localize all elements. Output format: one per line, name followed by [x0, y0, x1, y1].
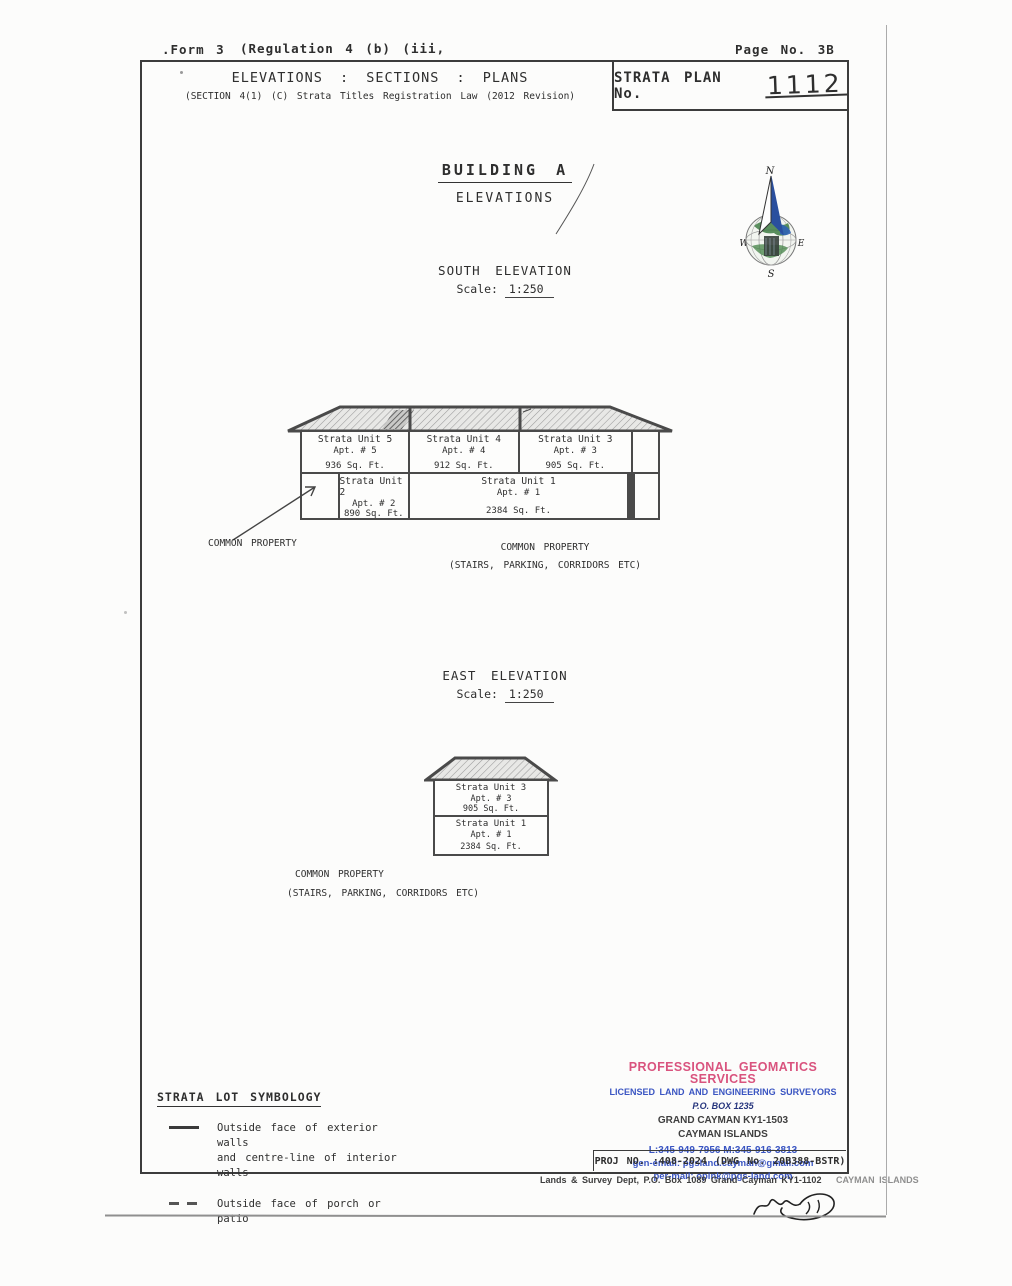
strata-plan-label: STRATA PLAN No. [614, 70, 755, 102]
east-elevation-heading: EAST ELEVATION Scale: 1:250 [400, 668, 610, 701]
legend-label-line1: Outside face of porch or patio [217, 1197, 417, 1227]
compass-s: S [768, 269, 775, 280]
page-number: Page No. 3B [735, 42, 835, 57]
project-number: PROJ NO. :408-2024 (DWG No. 20B388-BSTR) [595, 1156, 846, 1167]
east-elevation-drawing: Strata Unit 3 Apt. # 3 905 Sq. Ft. Strat… [424, 754, 558, 860]
dashed-line-symbol [169, 1202, 199, 1205]
unit-name: Strata Unit 3 [456, 783, 526, 793]
compass-e: E [797, 239, 805, 249]
unit-box-strata-2: Strata Unit 2 Apt. # 2 890 Sq. Ft. [338, 472, 411, 520]
unit-name: Strata Unit 2 [340, 476, 409, 498]
project-number-box: PROJ NO. :408-2024 (DWG No. 20B388-BSTR) [593, 1150, 846, 1171]
unit-area: 912 Sq. Ft. [434, 461, 494, 471]
unit-area: 905 Sq. Ft. [463, 804, 519, 814]
lands-survey-country: CAYMAN ISLANDS [836, 1175, 919, 1185]
unit-name: Strata Unit 1 [456, 819, 526, 829]
unit-apt: Apt. # 2 [352, 499, 395, 509]
south-elevation-drawing: Strata Unit 5 Apt. # 5 936 Sq. Ft. Strat… [285, 403, 675, 525]
surveyor-po-box: P.O. BOX 1235 [600, 1100, 846, 1112]
legend-item-exterior-walls: Outside face of exterior walls and centr… [157, 1121, 417, 1181]
unit-apt: Apt. # 3 [554, 446, 597, 456]
unit-box-strata-4: Strata Unit 4 Apt. # 4 912 Sq. Ft. [408, 430, 521, 475]
unit-area: 905 Sq. Ft. [545, 461, 605, 471]
common-property-subtext: (STAIRS, PARKING, CORRIDORS ETC) [287, 888, 479, 899]
sheet-header: ELEVATIONS : SECTIONS : PLANS (SECTION 4… [150, 70, 610, 102]
legend-item-porch-patio: Outside face of porch or patio [157, 1197, 417, 1227]
south-common-property-center: COMMON PROPERTY (STAIRS, PARKING, CORRID… [430, 542, 660, 571]
sheet-subtitle: (SECTION 4(1) (C) Strata Titles Registra… [150, 91, 610, 102]
strata-plan-box: STRATA PLAN No. 1112 [612, 60, 849, 111]
south-elevation-heading: SOUTH ELEVATION Scale: 1:250 [400, 263, 610, 296]
east-floors: Strata Unit 3 Apt. # 3 905 Sq. Ft. Strat… [433, 779, 549, 857]
unit-name: Strata Unit 5 [318, 434, 392, 445]
unit-area: 2384 Sq. Ft. [460, 842, 521, 852]
surveyor-tagline: LICENSED LAND AND ENGINEERING SURVEYORS [600, 1086, 846, 1098]
unit-name: Strata Unit 3 [538, 434, 612, 445]
unit-box-strata-1-east: Strata Unit 1 Apt. # 1 2384 Sq. Ft. [433, 815, 549, 856]
south-scale-value: 1:250 [505, 282, 554, 298]
common-cell [631, 430, 661, 475]
scan-paper-edge-vertical [886, 25, 887, 1215]
unit-apt: Apt. # 1 [497, 488, 540, 498]
south-scale: Scale: 1:250 [400, 282, 610, 296]
surveyor-country: CAYMAN ISLANDS [600, 1129, 846, 1141]
unit-area: 890 Sq. Ft. [344, 509, 404, 519]
unit-box-strata-5: Strata Unit 5 Apt. # 5 936 Sq. Ft. [300, 430, 410, 475]
regulation-label: (Regulation 4 (b) (iii, [240, 41, 445, 56]
lands-survey-line: Lands & Survey Dept, P.O. Box 1089 Grand… [540, 1175, 919, 1185]
unit-area: 2384 Sq. Ft. [486, 506, 551, 516]
unit-apt: Apt. # 1 [471, 830, 512, 840]
unit-apt: Apt. # 4 [442, 446, 485, 456]
unit-box-strata-3-east: Strata Unit 3 Apt. # 3 905 Sq. Ft. [433, 779, 549, 818]
south-common-property-label-left: COMMON PROPERTY [208, 538, 297, 549]
unit-name: Strata Unit 1 [481, 476, 555, 487]
common-property-leader-arrow [225, 478, 325, 544]
legend-label-line2: and centre-line of interior walls [217, 1151, 417, 1181]
east-scale-label: Scale: [456, 687, 498, 701]
scan-dot [124, 611, 127, 614]
common-property-text: COMMON PROPERTY [430, 542, 660, 553]
strata-lot-symbology: STRATA LOT SYMBOLOGY Outside face of ext… [157, 1086, 417, 1227]
solid-line-symbol [169, 1126, 199, 1129]
east-scale: Scale: 1:250 [400, 687, 610, 701]
strata-plan-number-handwritten: 1112 [765, 73, 847, 98]
legend-label-line1: Outside face of exterior walls [217, 1121, 417, 1151]
unit-apt: Apt. # 3 [471, 794, 512, 804]
surveyor-city: GRAND CAYMAN KY1-1503 [600, 1115, 846, 1127]
stray-pen-line [550, 160, 600, 240]
sheet-title: ELEVATIONS : SECTIONS : PLANS [150, 70, 610, 86]
south-lower-floor: Strata Unit 2 Apt. # 2 890 Sq. Ft. Strat… [300, 472, 660, 520]
south-elevation-title: SOUTH ELEVATION [400, 263, 610, 278]
common-cell-right [627, 472, 660, 520]
common-property-text: COMMON PROPERTY [295, 869, 479, 880]
surveyor-company-name: PROFESSIONAL GEOMATICS SERVICES [600, 1061, 846, 1085]
east-common-property: COMMON PROPERTY (STAIRS, PARKING, CORRID… [295, 869, 479, 899]
south-upper-floor: Strata Unit 5 Apt. # 5 936 Sq. Ft. Strat… [300, 430, 660, 475]
signature [748, 1182, 844, 1226]
unit-box-strata-3: Strata Unit 3 Apt. # 3 905 Sq. Ft. [518, 430, 634, 475]
east-scale-value: 1:250 [505, 687, 554, 703]
scan-dot [180, 71, 183, 74]
unit-apt: Apt. # 5 [333, 446, 376, 456]
legend-title: STRATA LOT SYMBOLOGY [157, 1090, 321, 1107]
east-elevation-title: EAST ELEVATION [400, 668, 610, 683]
unit-name: Strata Unit 4 [427, 434, 501, 445]
unit-box-strata-1: Strata Unit 1 Apt. # 1 2384 Sq. Ft. [408, 472, 630, 520]
form-label: .Form 3 [162, 42, 225, 57]
unit-area: 936 Sq. Ft. [325, 461, 385, 471]
south-scale-label: Scale: [456, 282, 498, 296]
common-property-subtext: (STAIRS, PARKING, CORRIDORS ETC) [430, 560, 660, 571]
north-compass: N W E S [740, 162, 806, 282]
compass-n: N [765, 166, 776, 177]
